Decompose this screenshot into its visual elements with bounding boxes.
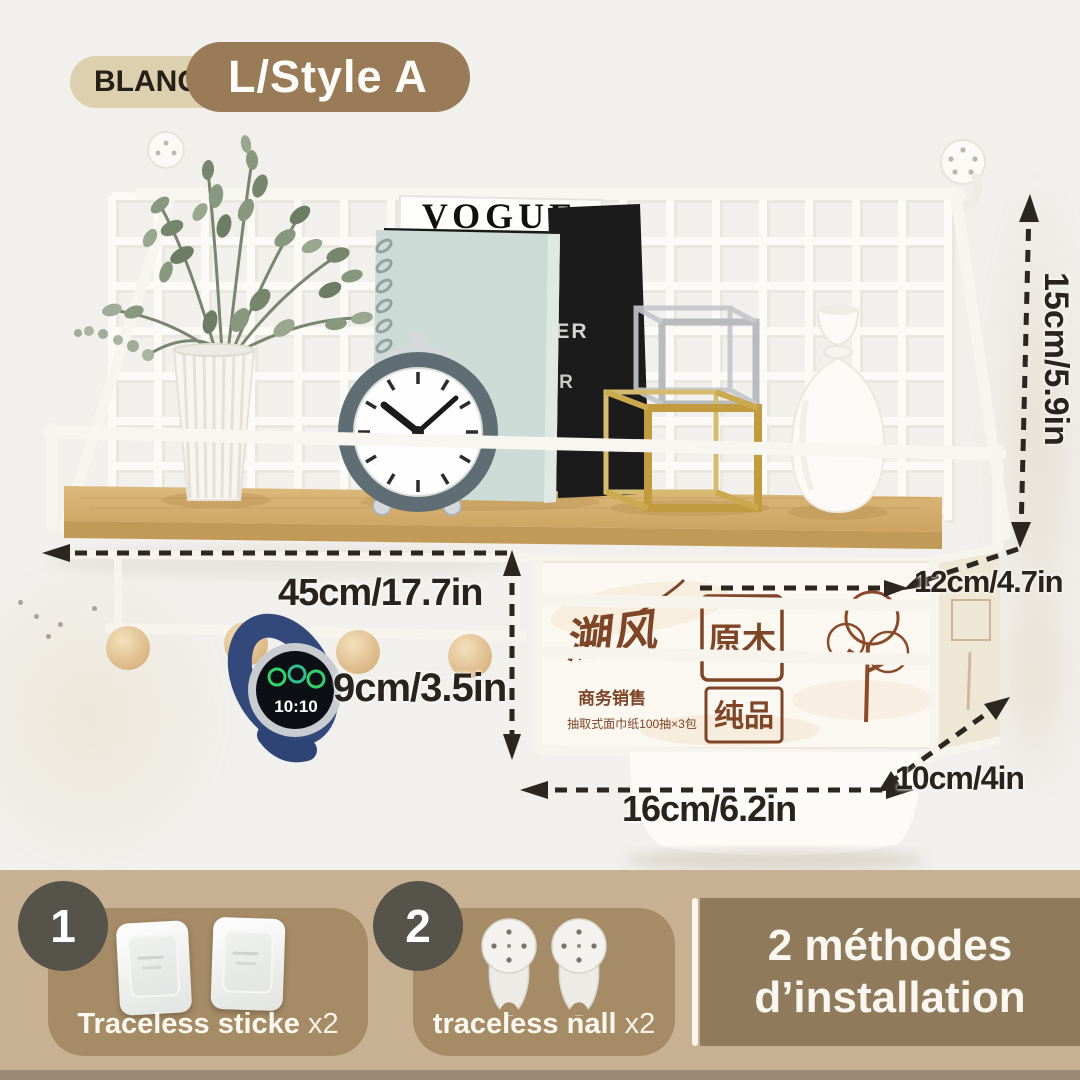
wooden-ball-hook: [106, 626, 150, 670]
installation-title-box: 2 méthodes d’installation: [700, 898, 1080, 1046]
adhesive-sticker-icon: [210, 917, 285, 1011]
book-spine-text: R: [559, 372, 573, 393]
section-divider: [692, 898, 698, 1046]
step-number-badge: 2: [373, 881, 463, 971]
dim-arrow-back-height: [1021, 208, 1029, 534]
method-label: Traceless stickex2: [48, 1008, 368, 1041]
dimension-label-width: 45cm/17.7in: [278, 572, 482, 615]
shadow: [625, 848, 925, 872]
wall-hook-left: [148, 132, 184, 168]
adhesive-sticker-icon: [116, 920, 193, 1016]
dimension-label-basket-width: 16cm/6.2in: [622, 788, 796, 830]
tissue-line1: 商务销售: [578, 688, 646, 708]
product-listing-image: VOGUE VOGUE ER R: [0, 0, 1080, 1080]
variant-badge: L/Style A: [186, 42, 470, 112]
dimension-label-basket-depth: 10cm/4in: [895, 760, 1024, 797]
bottom-edge-strip: [0, 1070, 1080, 1080]
tissue-seal-bottom: 纯品: [714, 700, 774, 733]
book-spine-text: ER: [555, 320, 588, 343]
wall-nail-icon: [477, 916, 541, 1020]
installation-title-line2: d’installation: [754, 972, 1025, 1024]
dimension-label-shelf-depth: 12cm/4.7in: [914, 564, 1063, 600]
tissue-line2: 抽取式面巾纸100抽×3包: [567, 717, 697, 731]
method-label: traceless nallx2: [413, 1008, 675, 1041]
installation-title-line1: 2 méthodes: [768, 920, 1013, 972]
dimension-label-back-height: 15cm/5.9in: [1036, 272, 1075, 446]
step-number-badge: 1: [18, 881, 108, 971]
dimension-label-hook-drop: 9cm/3.5in: [333, 666, 506, 711]
wall-nail-icon: [547, 916, 611, 1020]
watch-time: 10:10: [274, 697, 317, 716]
